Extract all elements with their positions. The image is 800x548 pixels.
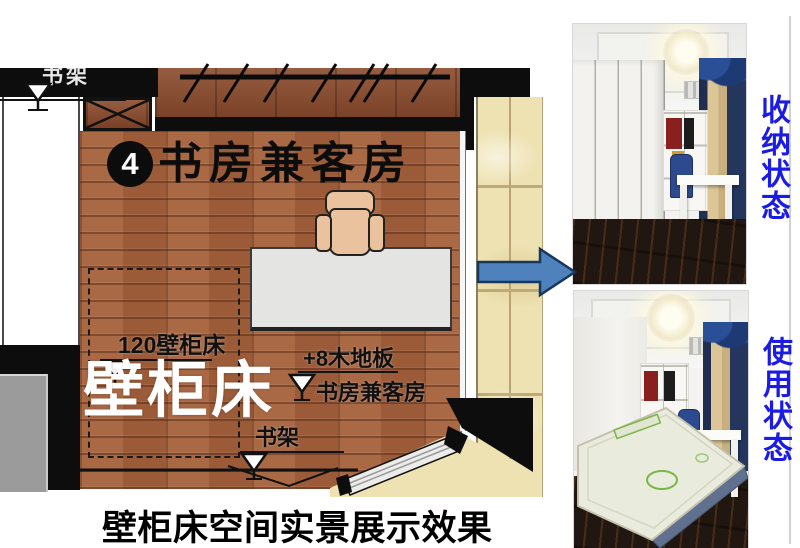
plan-column-box: [83, 97, 152, 131]
room-number-badge: 4: [107, 141, 153, 187]
plan-chair-seat: [329, 208, 371, 256]
photo1-desk-top: [677, 175, 739, 185]
plan-topleft-wall: 书架: [0, 68, 158, 97]
arrow-right-icon: [470, 240, 585, 304]
books: [684, 118, 694, 149]
photo1-closed-wall-bed-cabinet: [573, 60, 665, 226]
bottom-shelf-label: 书架: [255, 427, 299, 449]
plan-desk: [250, 247, 452, 331]
books: [666, 118, 682, 149]
topleft-underline: [0, 99, 126, 101]
photo1-dark-floor: [573, 219, 746, 284]
slide: 书架: [0, 0, 800, 548]
chandelier-light: [647, 294, 695, 342]
room-floor-label: 书房兼客房: [316, 382, 426, 404]
plan-topright-wall: [460, 68, 530, 97]
top-shelf-label: 书架: [42, 68, 90, 90]
wall-bed-big-label: 壁柜床: [83, 357, 275, 424]
plan-wardrobe-wall: [155, 117, 462, 131]
floor-height-label: +8木地板: [303, 348, 394, 370]
left-wall-line: [2, 97, 4, 347]
bottom-shelf-underline: [240, 451, 344, 453]
photo-in-use-state: [573, 290, 749, 548]
room-right-wall-line: [459, 131, 466, 431]
plan-wardrobe-strip: [155, 68, 462, 118]
storage-state-label: 收纳状态: [750, 94, 794, 222]
plan-grey-cabinet: [0, 374, 48, 492]
plan-chair-arm-left: [315, 214, 332, 252]
room-title: 书房兼客房: [158, 142, 413, 186]
bed-width-label: 120壁柜床: [118, 334, 225, 357]
photo2-folded-down-bed: [574, 388, 748, 548]
photo-storage-state: [572, 23, 747, 285]
floor-height-underline: [298, 371, 398, 373]
in-use-state-label: 使用状态: [752, 336, 796, 464]
room-left-wall-line: [78, 97, 80, 347]
slide-caption: 壁柜床空间实景展示效果: [102, 500, 493, 548]
plan-chair-arm-right: [368, 214, 385, 252]
